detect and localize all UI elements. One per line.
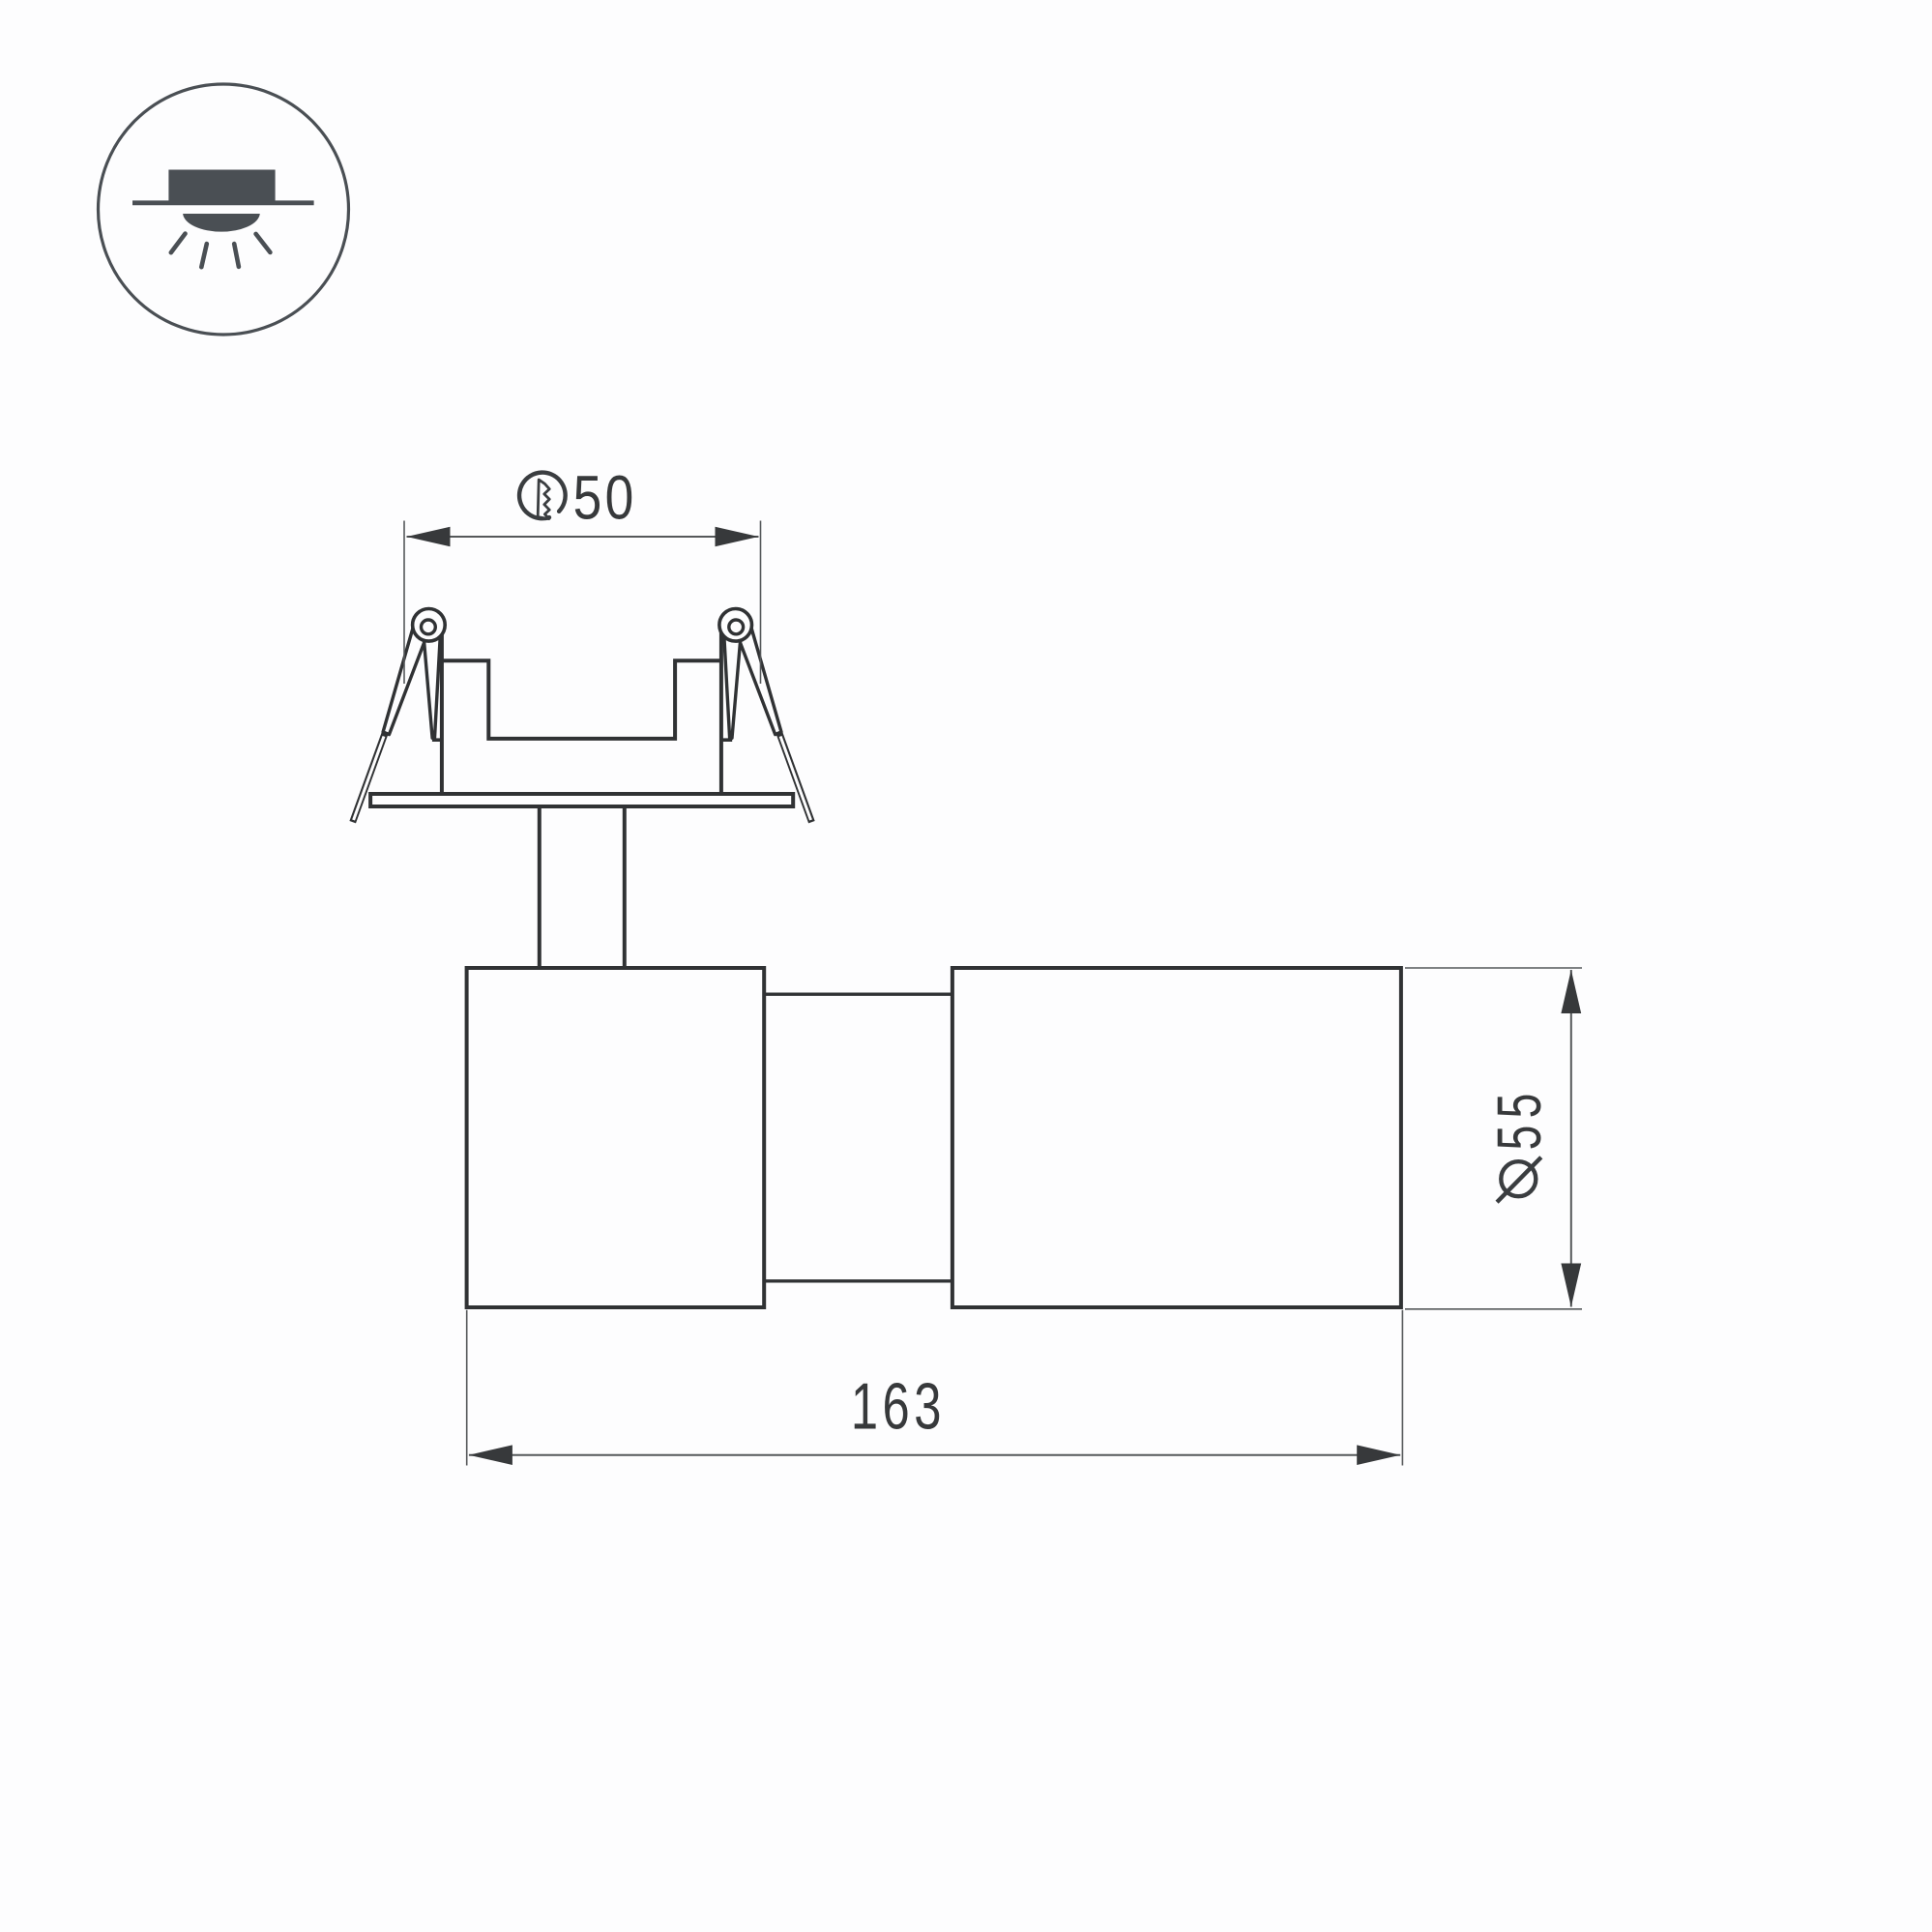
svg-text:163: 163 [851, 1370, 946, 1444]
svg-text:55: 55 [1484, 1086, 1554, 1150]
svg-text:50: 50 [573, 463, 637, 533]
